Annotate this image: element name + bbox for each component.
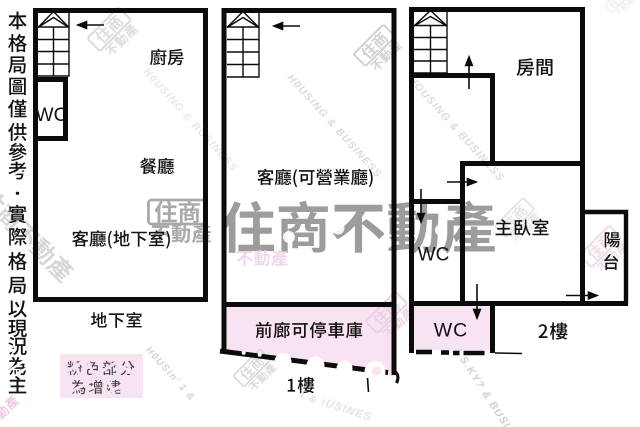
svg-text:WC: WC xyxy=(434,320,469,342)
svg-text:WC: WC xyxy=(418,245,450,266)
svg-text:WC: WC xyxy=(36,105,68,126)
